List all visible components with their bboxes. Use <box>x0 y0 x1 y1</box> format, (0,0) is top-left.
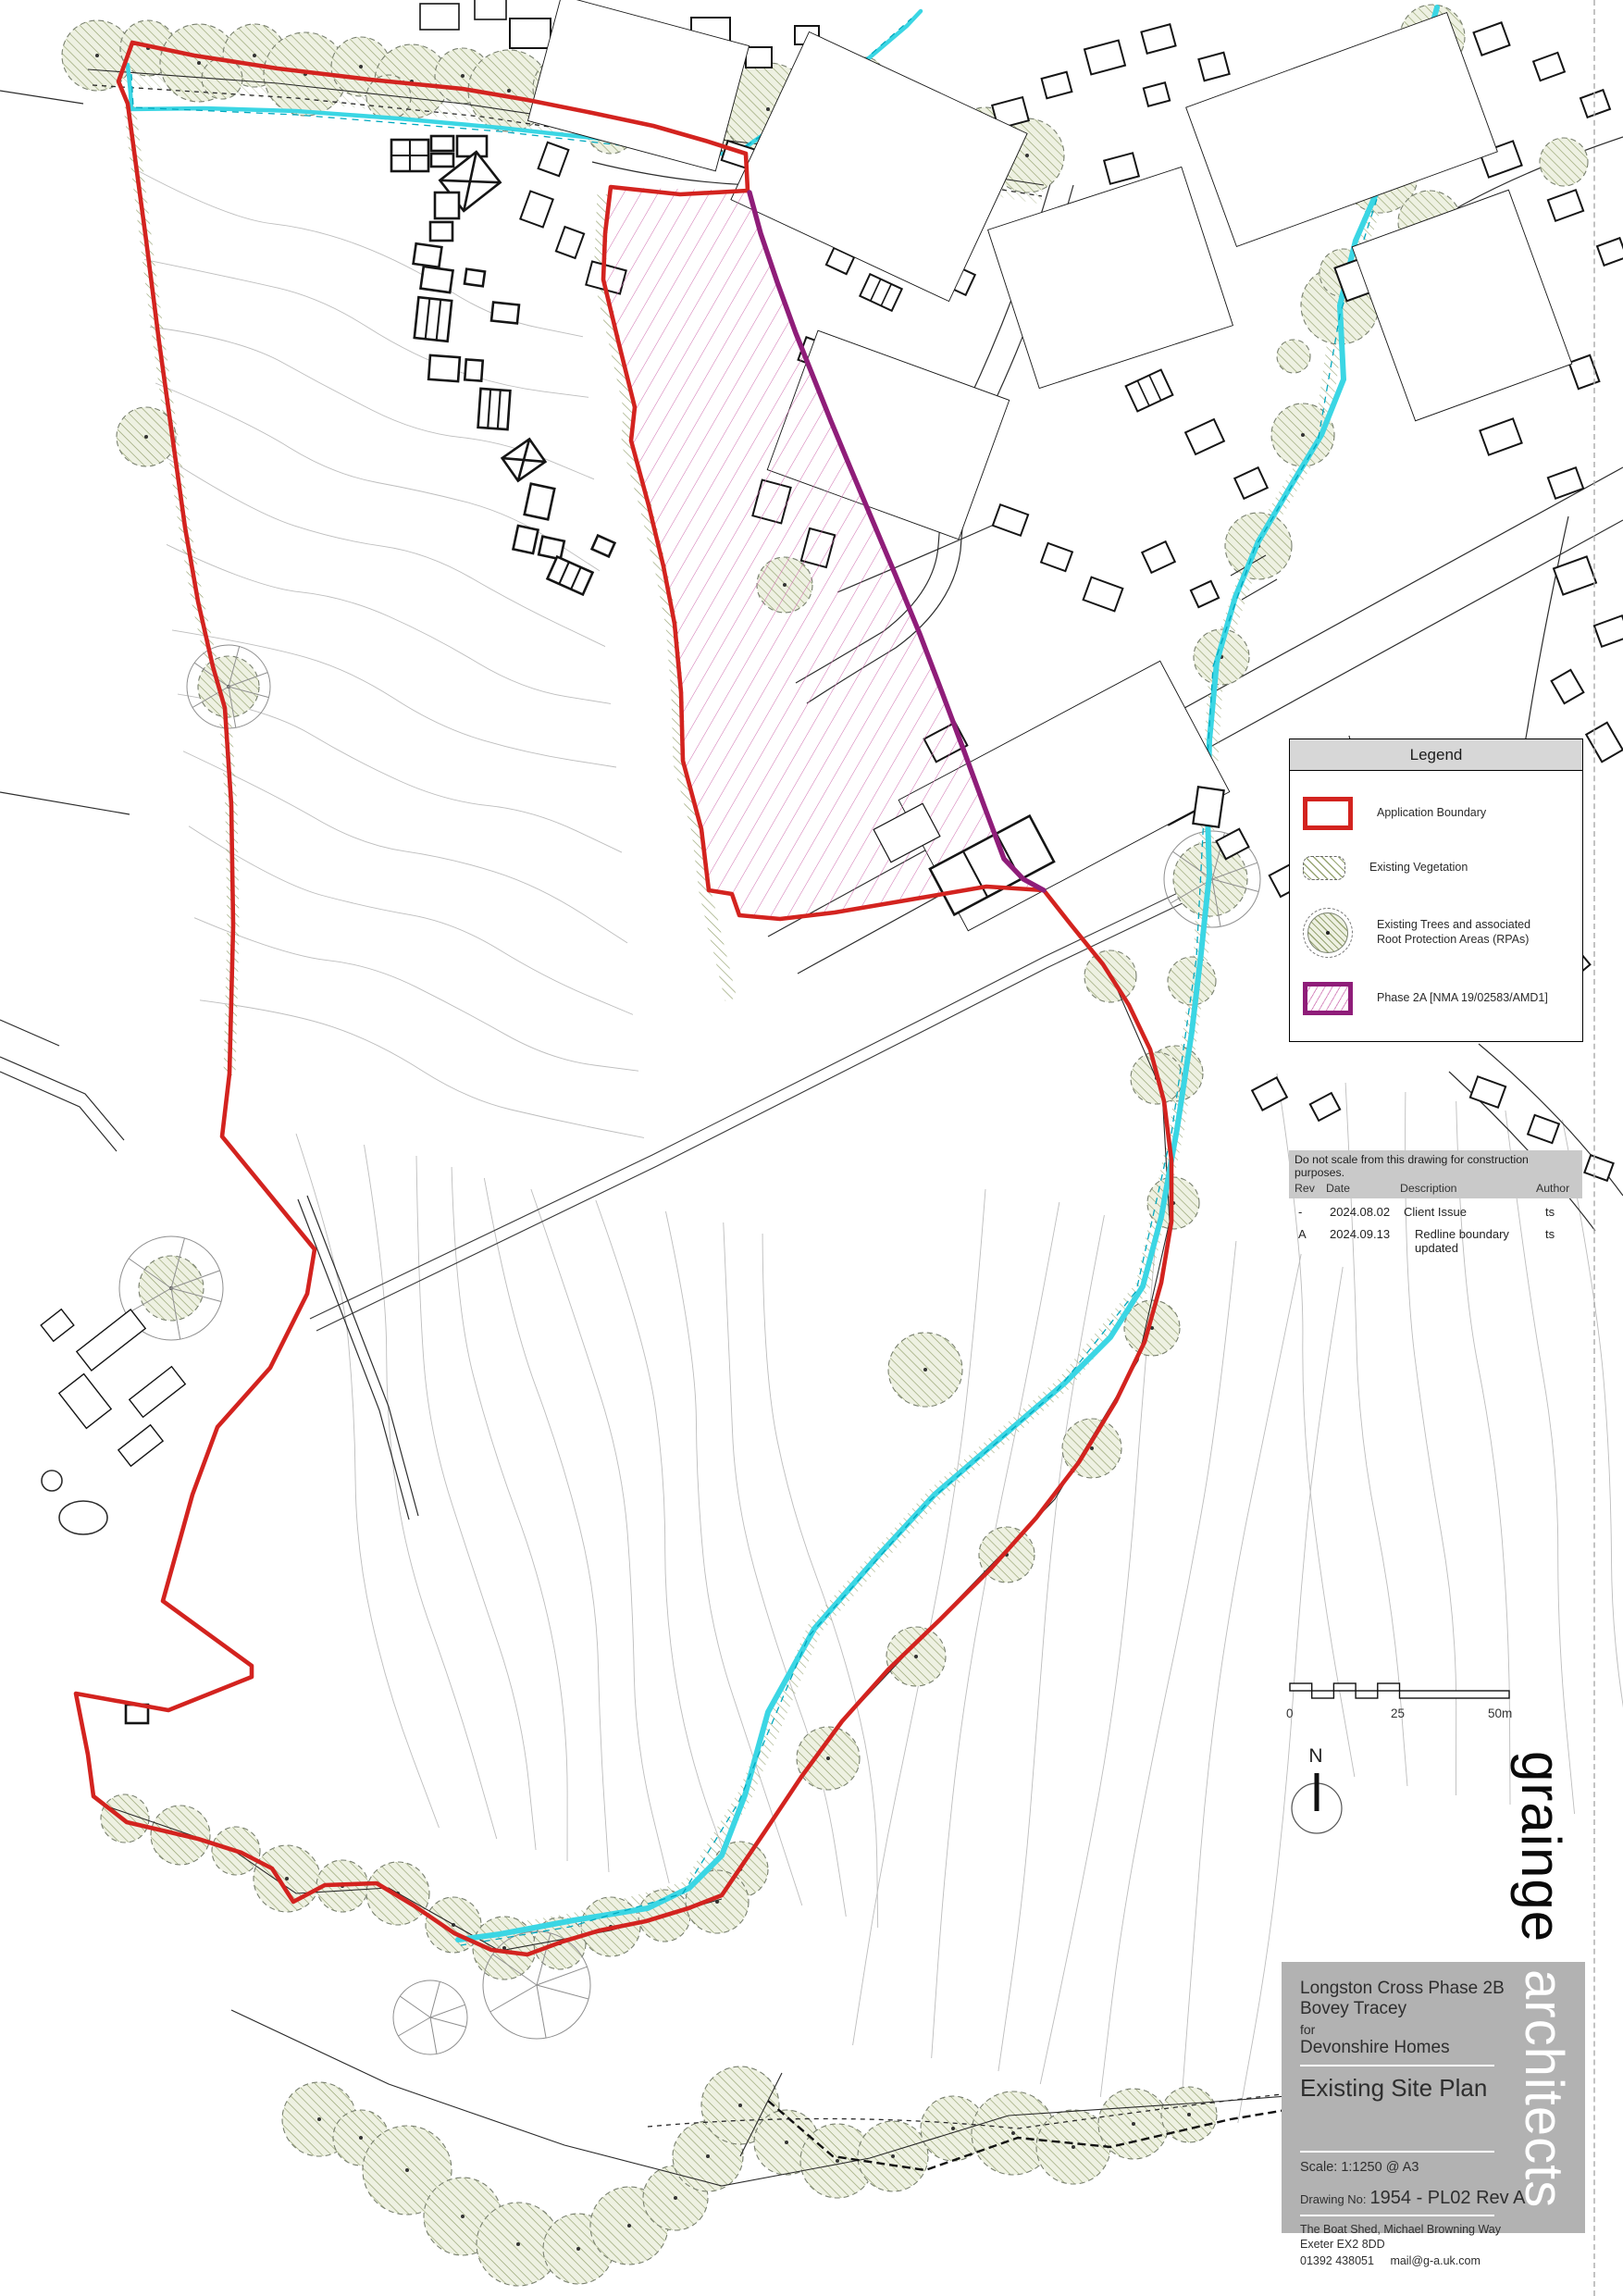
drawing-number-label: Drawing No: <box>1300 2192 1367 2206</box>
trim-marks <box>1593 0 1595 2296</box>
col-author: Author <box>1536 1182 1577 1195</box>
culvert <box>1193 787 1223 827</box>
phone-number: 01392 438051 <box>1300 2254 1374 2267</box>
application-boundary-swatch <box>1303 797 1353 830</box>
scale-bar: 0 25 50m <box>1289 1682 1520 1725</box>
legend-item-application-boundary: Application Boundary <box>1303 797 1486 830</box>
existing-trees-rpa-swatch <box>1303 908 1353 958</box>
scale-label-25: 25 <box>1391 1706 1405 1720</box>
scale-label-0: 0 <box>1286 1706 1294 1720</box>
legend-title: Legend <box>1290 739 1582 771</box>
disclaimer-text: Do not scale from this drawing for const… <box>1289 1150 1582 1180</box>
north-arrow-icon <box>1286 1768 1351 1845</box>
revision-header-row: Rev Date Description Author <box>1289 1180 1582 1198</box>
north-label: N <box>1286 1745 1345 1768</box>
site-plan-sheet: Legend Application Boundary Existing Veg… <box>0 0 1623 2296</box>
col-description: Description <box>1387 1182 1536 1195</box>
phase-2a-hatched-area <box>603 187 1044 919</box>
scale-label-50m: 50m <box>1488 1706 1512 1720</box>
north-arrow: N <box>1286 1745 1351 1847</box>
practice-address: The Boat Shed, Michael Browning Way Exet… <box>1300 2222 1585 2253</box>
existing-vegetation-swatch <box>1303 856 1345 880</box>
revision-row: A 2024.09.13 Redline boundary updated ts <box>1289 1221 1582 1257</box>
revision-row: - 2024.08.02 Client Issue ts <box>1289 1198 1582 1221</box>
phase-2a-swatch <box>1303 982 1353 1015</box>
legend-panel: Legend Application Boundary Existing Veg… <box>1289 738 1583 1042</box>
col-rev: Rev <box>1295 1182 1326 1195</box>
col-date: Date <box>1326 1182 1387 1195</box>
practice-contact: 01392 438051 mail@g-a.uk.com <box>1300 2254 1585 2267</box>
site-plan-map <box>0 0 1623 2296</box>
email-address: mail@g-a.uk.com <box>1390 2254 1480 2267</box>
scale-bar-graphic <box>1289 1682 1520 1703</box>
brand-architects: architects <box>1513 1969 1575 2208</box>
brand-grainge: grainge <box>1509 1751 1573 1942</box>
legend-item-existing-vegetation: Existing Vegetation <box>1303 856 1468 880</box>
legend-item-existing-trees: Existing Trees and associated Root Prote… <box>1303 908 1530 958</box>
legend-item-phase-2a: Phase 2A [NMA 19/02583/AMD1] <box>1303 982 1548 1015</box>
revision-panel: Do not scale from this drawing for const… <box>1289 1150 1582 1257</box>
drawing-number-value: 1954 - PL02 Rev A <box>1370 2188 1526 2208</box>
